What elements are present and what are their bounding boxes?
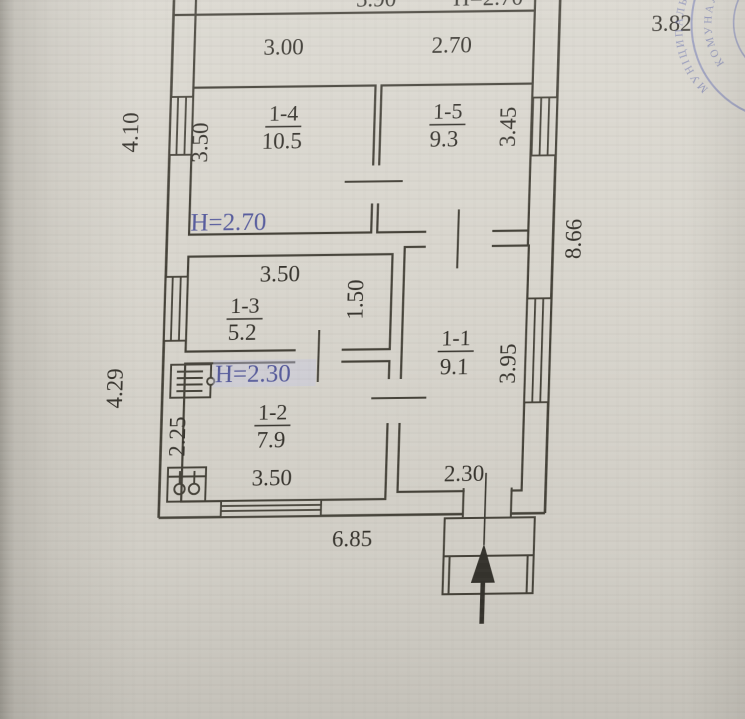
- outside-dim-right: 8.66: [559, 219, 586, 260]
- outer-walls: [159, 0, 561, 518]
- room-1-5-width: 2.70: [431, 31, 472, 57]
- stamp: МУНІЦИПАЛЬНОГО КОМУНАЛ: [670, 0, 745, 122]
- window-symbol: [532, 97, 558, 155]
- room-1-2-area: 7.9: [256, 426, 286, 452]
- door-opening: [371, 398, 426, 399]
- outside-dim-left-lower: 4.29: [101, 368, 128, 409]
- gas-stove-icon: [167, 467, 206, 501]
- room-1-5-id: 1-5: [433, 98, 463, 123]
- floor-plan-drawing: 5.90 H=2.70 3.00 3.50 1-4 10.5 H=2.70 2.…: [98, 0, 745, 662]
- window-symbol: [524, 298, 551, 402]
- room-1-4-id: 1-4: [269, 100, 299, 125]
- door-opening: [345, 181, 403, 182]
- room-1-4-depth: 3.50: [186, 122, 213, 163]
- room-1-5-area: 9.3: [429, 125, 459, 151]
- outside-dim-left-upper: 4.10: [116, 112, 143, 153]
- door-opening: [457, 209, 459, 268]
- room-1-4-width: 3.00: [263, 33, 304, 59]
- room-1-2-depth: 2.25: [163, 416, 190, 457]
- top-room-height-label: H=2.70: [453, 0, 524, 11]
- room-1-2-id: 1-2: [258, 399, 288, 424]
- inner-walls: [159, 0, 536, 502]
- outside-dim-bottom: 6.85: [332, 525, 373, 551]
- door-opening: [318, 330, 320, 382]
- room-1-2-height-label: H=2.30: [214, 360, 291, 388]
- svg-text:КОМУНАЛ: КОМУНАЛ: [701, 0, 729, 69]
- room-1-1-depth: 3.95: [494, 343, 521, 384]
- room-1-4-area: 10.5: [261, 127, 302, 153]
- floor-plan-photo: 5.90 H=2.70 3.00 3.50 1-4 10.5 H=2.70 2.…: [0, 0, 745, 719]
- room-1-1-area: 9.1: [439, 353, 469, 379]
- top-room-dim: 5.90: [356, 0, 397, 12]
- room-1-3-width: 3.50: [259, 260, 300, 286]
- room-1-2-width: 3.50: [251, 464, 292, 490]
- room-1-4-height-label: H=2.70: [190, 209, 267, 237]
- floor-plan-svg: 5.90 H=2.70 3.00 3.50 1-4 10.5 H=2.70 2.…: [98, 0, 745, 662]
- door-openings: [291, 164, 522, 521]
- boiler-icon: [170, 364, 215, 398]
- room-1-3-id: 1-3: [230, 293, 260, 318]
- window-symbol: [221, 500, 322, 517]
- stamp-text-inner: КОМУНАЛ: [701, 0, 729, 69]
- room-1-1-entry-width: 2.30: [444, 460, 485, 486]
- window-symbol: [164, 277, 188, 341]
- room-1-3-area: 5.2: [227, 319, 257, 345]
- room-1-1-id: 1-1: [441, 325, 471, 350]
- room-1-3-depth: 1.50: [342, 279, 369, 320]
- room-1-5-depth: 3.45: [494, 107, 521, 148]
